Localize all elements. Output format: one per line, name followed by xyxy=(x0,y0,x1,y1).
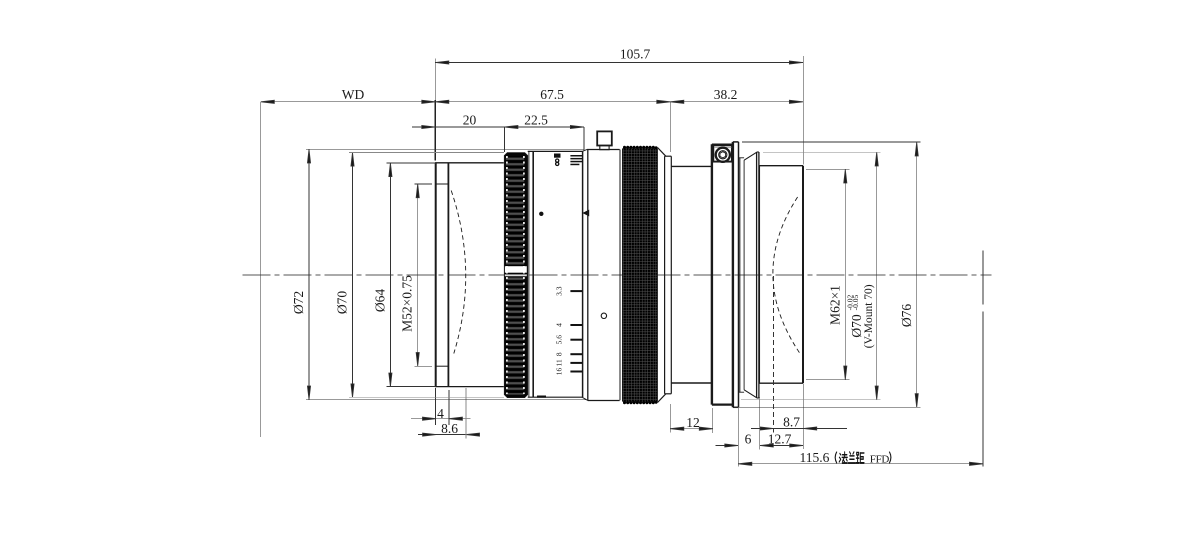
svg-text:Ø70: Ø70 xyxy=(849,314,864,337)
svg-text:Ø72: Ø72 xyxy=(291,291,306,314)
svg-text:Ø70: Ø70 xyxy=(335,291,350,314)
svg-text:Ø64: Ø64 xyxy=(373,289,388,312)
svg-text:115.6: 115.6 xyxy=(800,450,830,465)
svg-text:38.2: 38.2 xyxy=(714,87,738,102)
svg-text:20: 20 xyxy=(463,113,477,128)
svg-text:3.3: 3.3 xyxy=(555,286,564,296)
svg-text:(V-Mount 70): (V-Mount 70) xyxy=(863,284,875,348)
svg-text:22.5: 22.5 xyxy=(524,113,548,128)
svg-text:12.7: 12.7 xyxy=(768,432,792,447)
svg-text:4: 4 xyxy=(555,323,564,327)
svg-text:12: 12 xyxy=(686,415,700,430)
svg-text:11: 11 xyxy=(555,359,564,366)
svg-text:67.5: 67.5 xyxy=(540,87,564,102)
svg-text:8.7: 8.7 xyxy=(783,415,800,430)
svg-text:105.7: 105.7 xyxy=(620,47,651,62)
svg-text:5.6: 5.6 xyxy=(555,335,564,345)
svg-text:6: 6 xyxy=(745,432,752,447)
svg-text:WD: WD xyxy=(342,87,365,102)
svg-text:FFD: FFD xyxy=(870,453,890,465)
svg-text:8: 8 xyxy=(555,352,564,356)
svg-text:4: 4 xyxy=(437,406,444,421)
svg-text:M62×1: M62×1 xyxy=(828,285,843,325)
svg-text:16: 16 xyxy=(555,368,564,376)
svg-text:-0.05: -0.05 xyxy=(851,294,860,310)
svg-text:M52×0.75: M52×0.75 xyxy=(400,275,415,332)
svg-text:8.6: 8.6 xyxy=(441,421,458,436)
svg-text:Ø76: Ø76 xyxy=(899,304,914,327)
